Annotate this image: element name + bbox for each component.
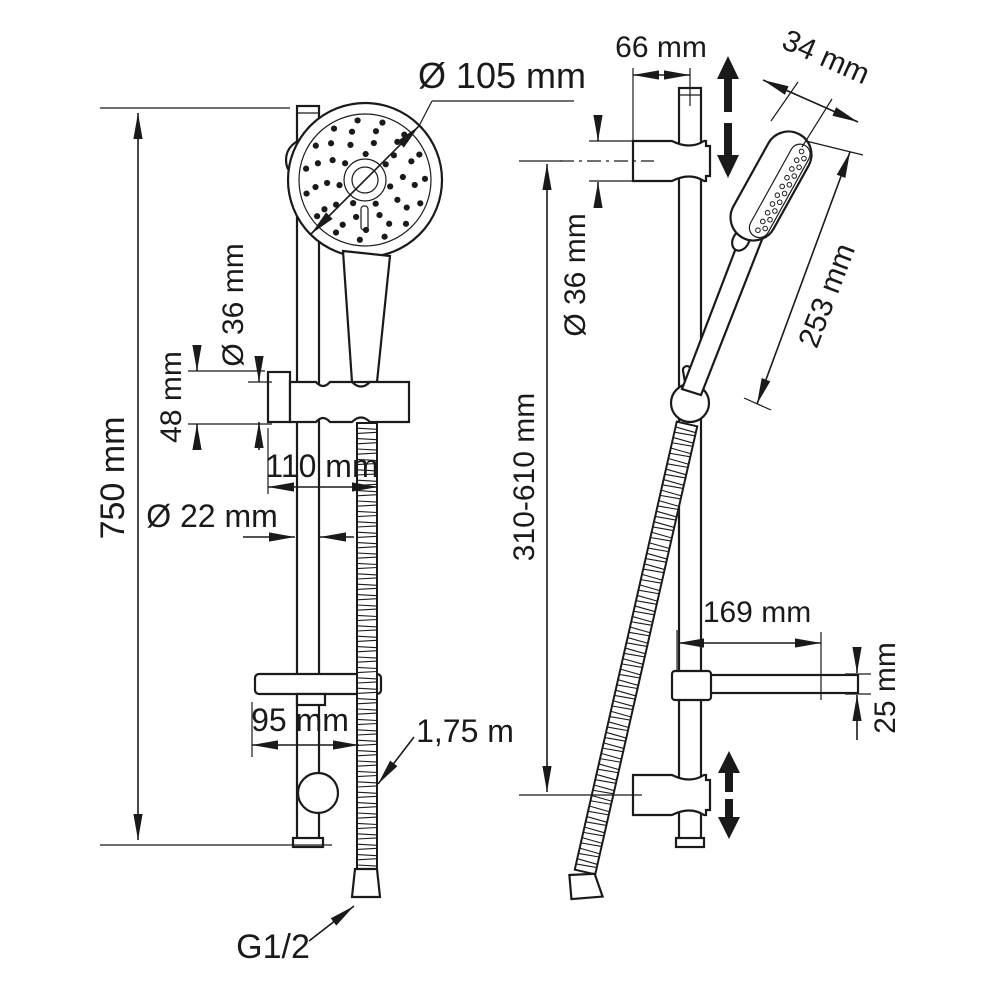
shower-set-drawing: 750 mm Ø 105 mm Ø 36 mm 48 mm [0, 0, 1000, 1000]
head-thickness-label: 34 mm [777, 24, 874, 91]
dim-hose-length: 1,75 m [378, 713, 514, 784]
bar-diameter-label: Ø 22 mm [146, 498, 278, 534]
soap-dish-side [672, 671, 858, 700]
bottom-wall-bracket [633, 775, 710, 815]
soap-dish-width-label: 95 mm [251, 702, 349, 738]
soap-dish-height-label: 25 mm [869, 642, 902, 734]
handshower-length-label: 253 mm [792, 239, 862, 352]
overall-height-label: 750 mm [94, 417, 132, 540]
slide-direction-arrows-top [717, 56, 739, 178]
technical-drawing-page: 750 mm Ø 105 mm Ø 36 mm 48 mm [0, 0, 1000, 1000]
holder-width-label: 110 mm [265, 448, 378, 484]
lower-bracket-knob [298, 773, 338, 813]
dim-head-thickness: 34 mm [763, 24, 874, 147]
dim-bracket-diameter: Ø 36 mm [559, 116, 640, 337]
holder-diameter-label: Ø 36 mm [217, 243, 250, 366]
dim-holder-height: 48 mm [155, 346, 272, 450]
hose-length-label: 1,75 m [416, 713, 514, 749]
holder-height-label: 48 mm [155, 351, 188, 443]
dim-bar-diameter: Ø 22 mm [146, 498, 354, 537]
hose-fitting-side [566, 869, 602, 903]
dim-holder-diameter: Ø 36 mm [217, 243, 272, 450]
side-view: 66 mm 34 mm Ø 36 mm 253 mm [508, 24, 902, 903]
thread-label: G1/2 [236, 928, 310, 966]
hose-fitting-front [352, 869, 380, 897]
handshower-handle-front [343, 251, 390, 382]
bracket-diameter-label: Ø 36 mm [559, 213, 592, 336]
slide-direction-arrows-bottom [718, 751, 740, 839]
dim-thread: G1/2 [236, 906, 354, 966]
wall-distance-label: 66 mm [615, 31, 707, 64]
head-diameter-label: Ø 105 mm [418, 55, 586, 96]
slider-range-label: 310-610 mm [508, 393, 541, 561]
holder-slider-front [268, 372, 409, 422]
shower-hose-front [357, 423, 377, 869]
soap-dish-depth-label: 169 mm [703, 596, 811, 629]
